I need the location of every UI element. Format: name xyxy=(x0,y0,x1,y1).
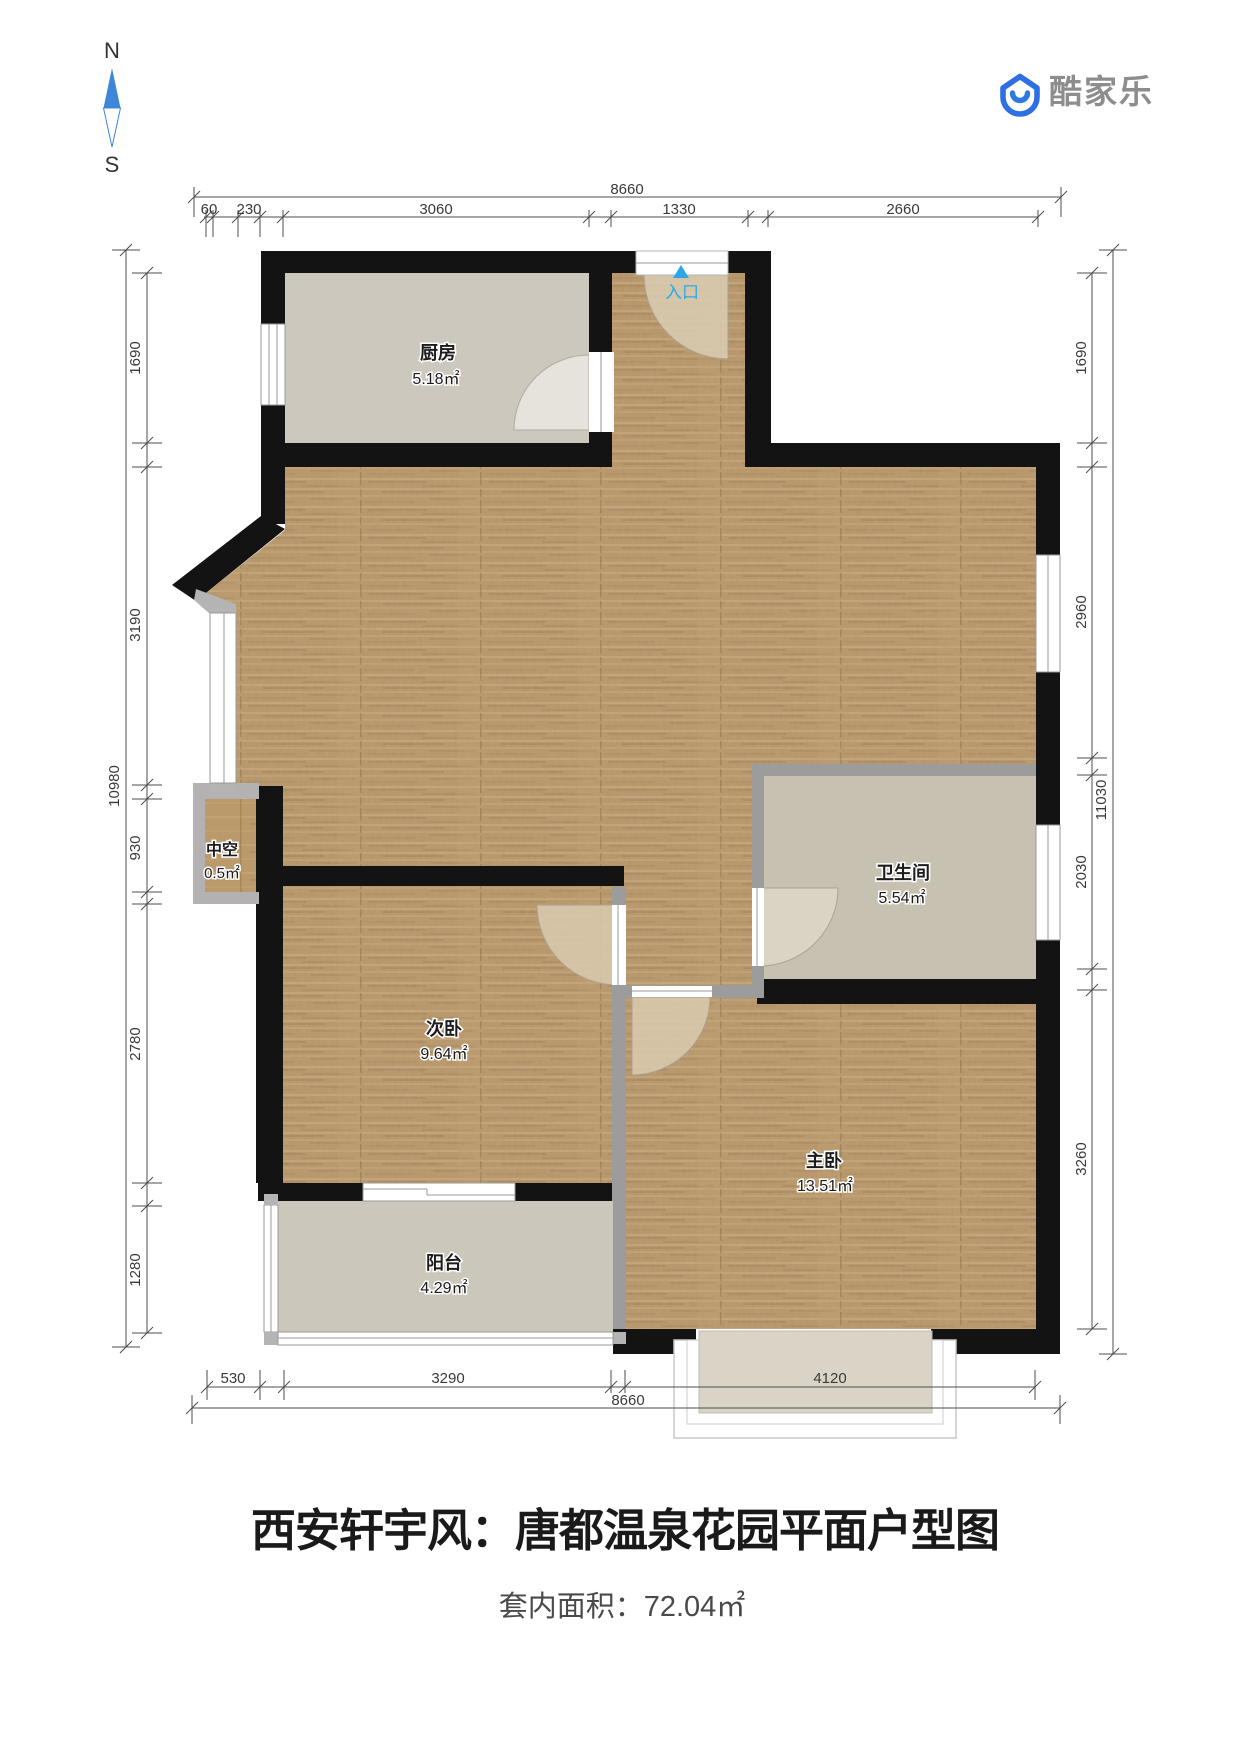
svg-text:13.51㎡: 13.51㎡ xyxy=(797,1177,853,1195)
svg-text:0.5㎡: 0.5㎡ xyxy=(204,865,240,882)
svg-text:酷家乐: 酷家乐 xyxy=(1049,73,1154,110)
svg-text:11030: 11030 xyxy=(1093,780,1110,821)
svg-text:4.29㎡: 4.29㎡ xyxy=(420,1279,467,1297)
svg-text:3190: 3190 xyxy=(127,608,144,641)
svg-text:卫生间: 卫生间 xyxy=(876,862,930,883)
svg-text:3260: 3260 xyxy=(1073,1142,1090,1175)
svg-text:N: N xyxy=(104,38,120,63)
svg-text:530: 530 xyxy=(220,1370,245,1387)
svg-text:2960: 2960 xyxy=(1073,595,1090,628)
svg-text:3290: 3290 xyxy=(431,1370,464,1387)
svg-text:2780: 2780 xyxy=(127,1027,144,1060)
svg-text:主卧: 主卧 xyxy=(806,1150,842,1171)
svg-text:次卧: 次卧 xyxy=(426,1018,462,1039)
svg-text:S: S xyxy=(105,152,120,177)
svg-text:8660: 8660 xyxy=(611,1392,644,1409)
svg-text:8660: 8660 xyxy=(610,181,643,198)
svg-text:厨房: 厨房 xyxy=(420,342,456,363)
svg-text:9.64㎡: 9.64㎡ xyxy=(420,1045,467,1063)
svg-text:10980: 10980 xyxy=(106,765,123,807)
svg-text:入口: 入口 xyxy=(665,283,699,302)
svg-text:1280: 1280 xyxy=(127,1253,144,1286)
svg-text:2660: 2660 xyxy=(886,201,919,218)
svg-text:5.54㎡: 5.54㎡ xyxy=(878,889,925,907)
svg-text:1330: 1330 xyxy=(662,201,695,218)
svg-text:5.18㎡: 5.18㎡ xyxy=(412,370,459,388)
svg-text:230: 230 xyxy=(236,201,261,218)
svg-text:西安轩宇风：唐都温泉花园平面户型图: 西安轩宇风：唐都温泉花园平面户型图 xyxy=(251,1505,999,1556)
svg-text:1690: 1690 xyxy=(127,341,144,374)
svg-text:3060: 3060 xyxy=(419,201,452,218)
svg-text:阳台: 阳台 xyxy=(426,1252,462,1273)
svg-text:套内面积：72.04㎡: 套内面积：72.04㎡ xyxy=(499,1590,746,1623)
svg-text:2030: 2030 xyxy=(1073,855,1090,888)
svg-text:中空: 中空 xyxy=(206,840,238,859)
svg-text:1690: 1690 xyxy=(1073,341,1090,374)
svg-text:4120: 4120 xyxy=(813,1370,846,1387)
svg-text:60: 60 xyxy=(201,201,218,218)
svg-text:930: 930 xyxy=(127,835,144,860)
